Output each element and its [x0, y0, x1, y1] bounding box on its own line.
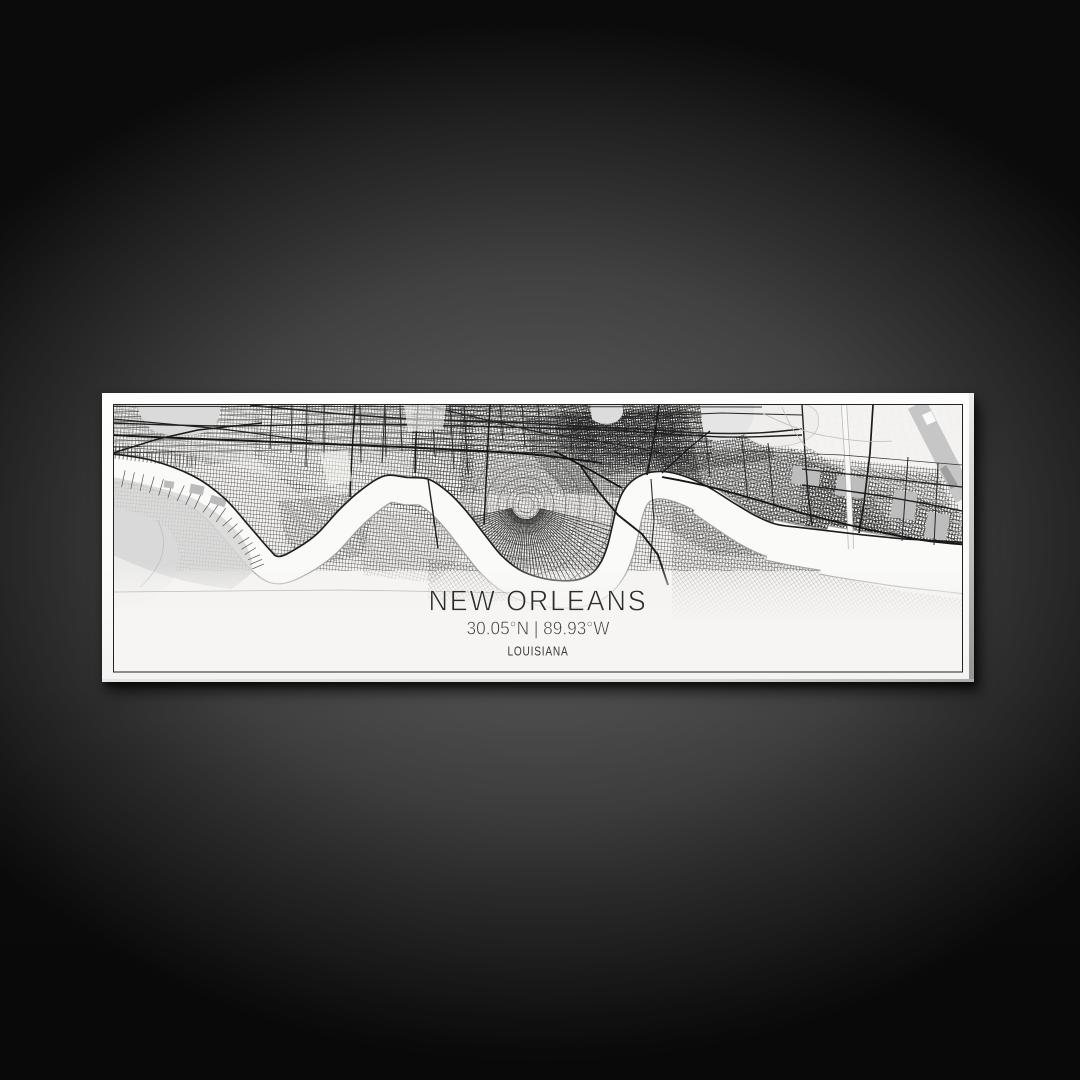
svg-text:LOUISIANA: LOUISIANA — [508, 644, 569, 659]
svg-text:30.05°N | 89.93°W: 30.05°N | 89.93°W — [467, 618, 610, 639]
svg-text:NEW ORLEANS: NEW ORLEANS — [429, 586, 648, 618]
